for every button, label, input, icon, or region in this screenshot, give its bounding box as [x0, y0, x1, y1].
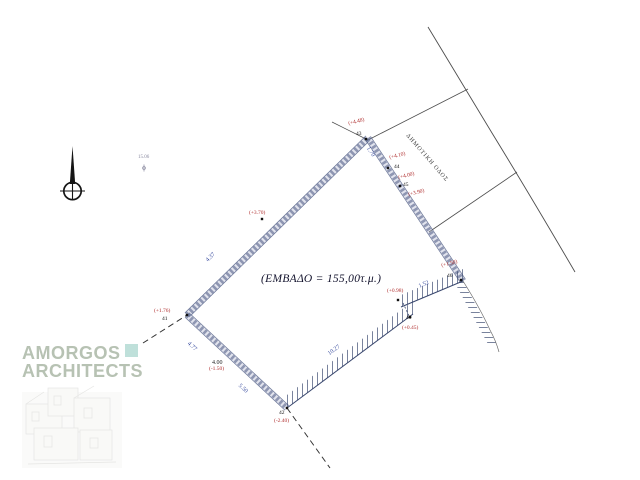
watermark-text-amorgos: AMORGOS [22, 343, 121, 363]
elevation-label: (+3.70) [249, 211, 265, 217]
watermark-line2: ARCHITECTS [22, 362, 143, 380]
watermark-square-icon [125, 344, 138, 357]
elevation-label: (-2.40) [274, 419, 289, 425]
spot-marker-label: 15.06 [138, 155, 149, 160]
plan-linework [0, 0, 640, 480]
point-id-label: 40 [406, 316, 412, 322]
point-id-label: 45 [403, 183, 409, 189]
elevation-label: (+1.76) [154, 309, 170, 315]
watermark-text-architects: ARCHITECTS [22, 361, 143, 381]
elevation-label: (+0.45) [402, 326, 418, 332]
area-label: (ΕΜΒΑΔΟ = 155,00τ.μ.) [261, 274, 381, 286]
spot-marker-icon [143, 165, 146, 172]
stone-wall-northwest [185, 136, 370, 317]
watermark-line1: AMORGOS [22, 344, 138, 362]
point-id-label: 46 [447, 274, 453, 280]
stone-wall-southwest [185, 313, 289, 410]
point-id-label: 41 [162, 317, 168, 323]
road-crossing-upper [368, 89, 468, 140]
point-id-label: 42 [279, 411, 285, 417]
watermark-sketch [22, 386, 122, 468]
dashed-boundary-south [287, 408, 330, 468]
point-id-label: 44 [394, 165, 400, 171]
dimension-label: 4.00 [212, 360, 223, 366]
road-line [428, 27, 575, 272]
elevation-label: (-1.50) [209, 367, 224, 373]
site-plan-drawing: (ΕΜΒΑΔΟ = 155,00τ.μ.) ΔΗΜΟΤΙΚΗ ΟΔΟΣ (+4.… [0, 0, 640, 480]
point-id-label: 43 [356, 132, 362, 138]
north-arrow-icon [60, 146, 85, 201]
elevation-label: (+0.98) [387, 289, 403, 295]
